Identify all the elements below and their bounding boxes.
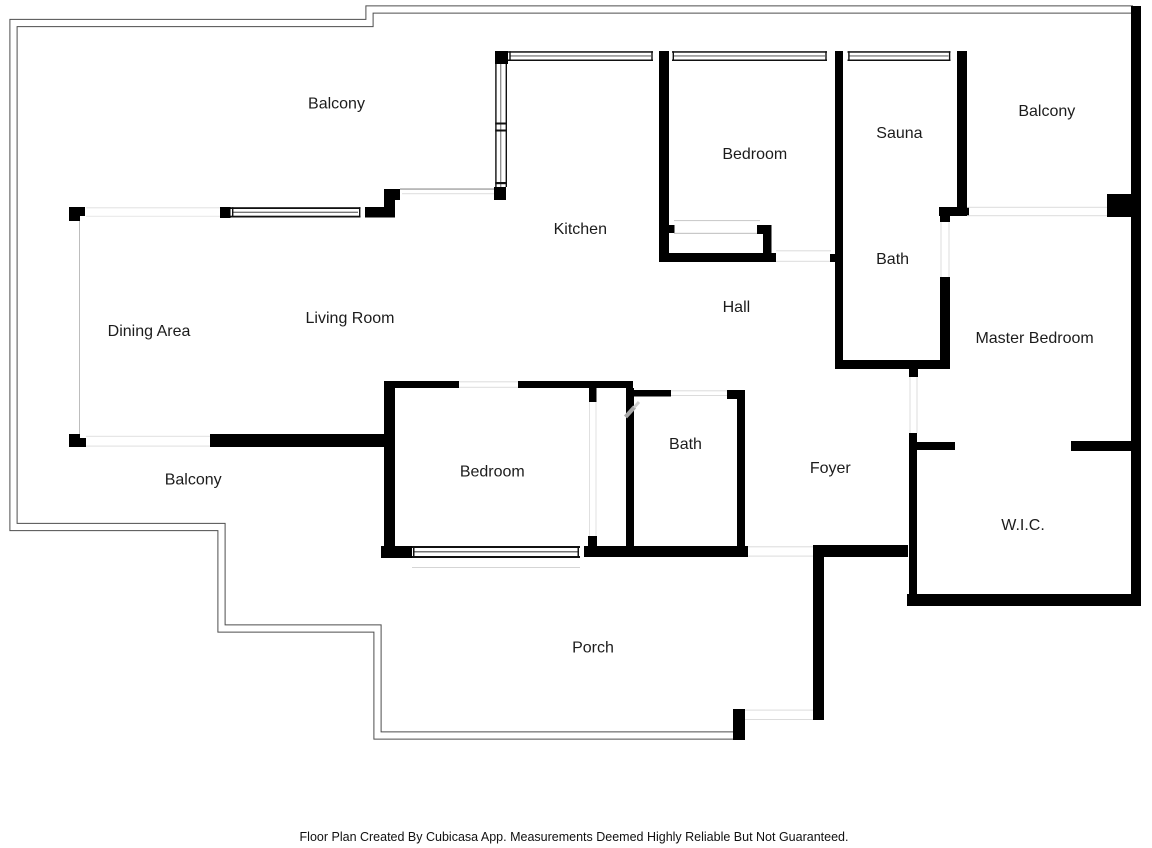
svg-text:Balcony: Balcony [165,472,222,489]
svg-text:Kitchen: Kitchen [554,221,607,238]
svg-text:Sauna: Sauna [876,125,922,142]
svg-text:W.I.C.: W.I.C. [1001,517,1045,534]
svg-text:Bedroom: Bedroom [460,464,525,481]
svg-text:Dining Area: Dining Area [108,323,191,340]
svg-text:Bath: Bath [876,251,909,268]
svg-text:Bedroom: Bedroom [722,146,787,163]
svg-text:Balcony: Balcony [1018,103,1075,120]
svg-text:Living Room: Living Room [306,310,395,327]
svg-text:Balcony: Balcony [308,96,365,113]
svg-text:Porch: Porch [572,640,614,657]
svg-text:Bath: Bath [669,436,702,453]
svg-text:Hall: Hall [723,299,751,316]
svg-text:Foyer: Foyer [810,460,852,477]
svg-text:Master Bedroom: Master Bedroom [975,330,1093,347]
svg-text:Floor Plan Created By Cubicasa: Floor Plan Created By Cubicasa App. Meas… [300,830,849,844]
